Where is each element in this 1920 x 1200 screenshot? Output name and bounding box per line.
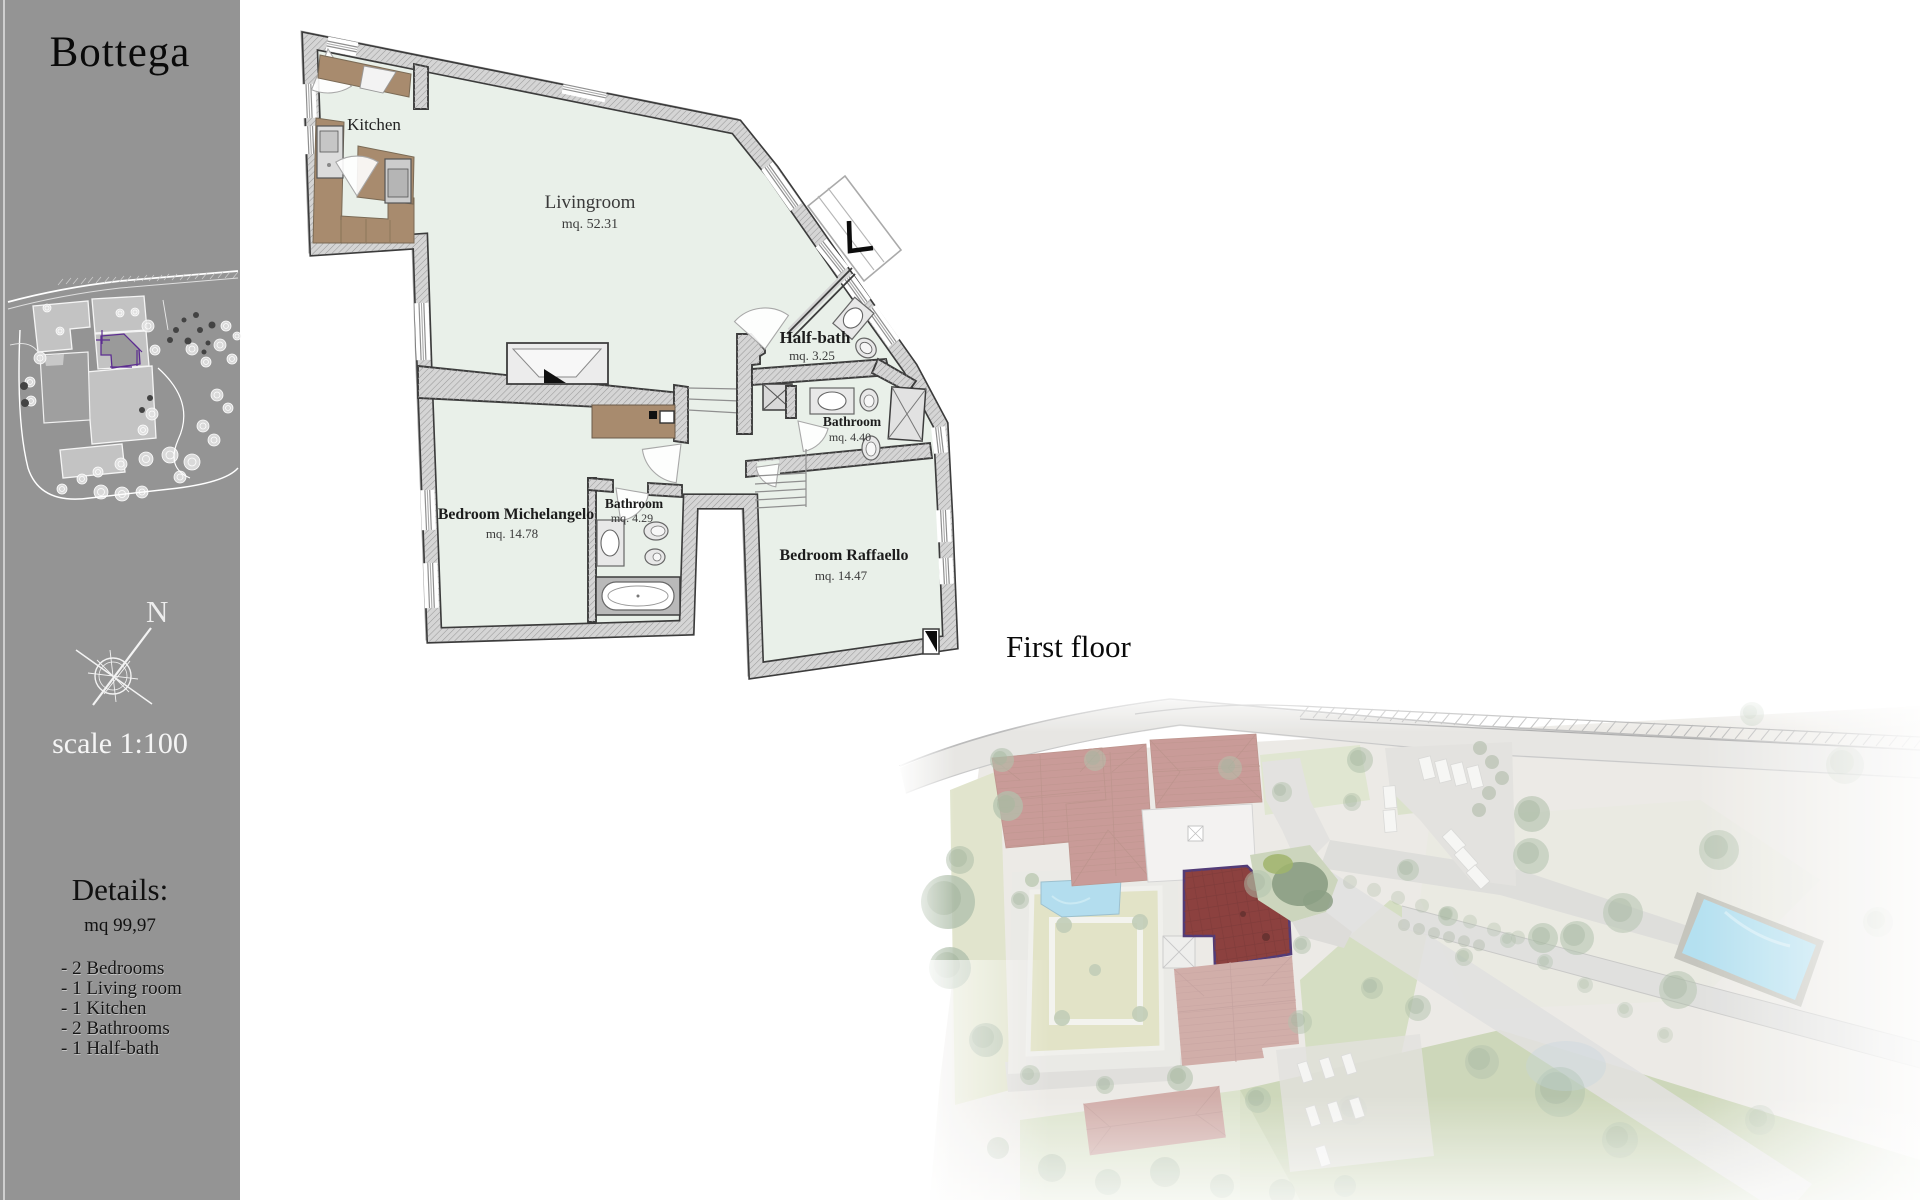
svg-text:mq. 4.29: mq. 4.29	[611, 511, 653, 525]
svg-text:Bathroom: Bathroom	[605, 496, 664, 511]
svg-text:mq. 3.25: mq. 3.25	[789, 348, 835, 363]
svg-text:mq. 14.78: mq. 14.78	[486, 526, 538, 541]
svg-text:mq. 14.47: mq. 14.47	[815, 568, 868, 583]
svg-text:Half-bath: Half-bath	[780, 328, 851, 347]
svg-text:Bathroom: Bathroom	[823, 414, 882, 429]
svg-text:N: N	[146, 594, 168, 629]
svg-text:Livingroom: Livingroom	[545, 192, 636, 213]
svg-text:mq. 52.31: mq. 52.31	[562, 217, 618, 232]
svg-text:Bedroom Michelangelo: Bedroom Michelangelo	[438, 506, 594, 523]
svg-text:Kitchen: Kitchen	[347, 115, 401, 134]
svg-text:mq. 4.40: mq. 4.40	[829, 430, 871, 444]
svg-text:Bedroom Raffaello: Bedroom Raffaello	[779, 547, 908, 564]
